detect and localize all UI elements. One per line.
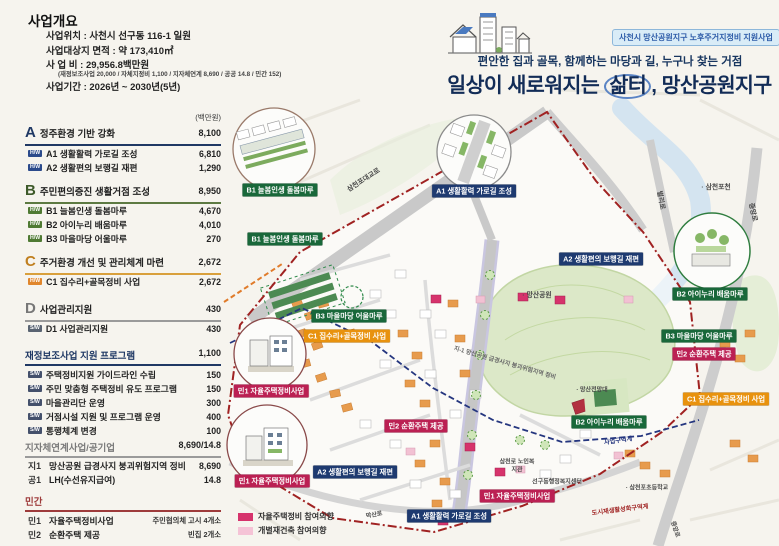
callout-label-b1: B1 늘봄인생 돌봄마루: [242, 184, 317, 197]
row-label: 순환주택 제공: [49, 528, 184, 541]
callout-label-a1: A1 생활활력 가로길 조성: [432, 185, 516, 198]
map-label-c1-east: C1 집수리+골목정비 사업: [683, 393, 769, 406]
row-label: 통행체계 변경: [46, 424, 203, 437]
sw-badge: S/W: [28, 371, 42, 378]
row-value: 14.8: [204, 475, 221, 485]
sw-badge: S/W: [28, 427, 42, 434]
overview-period: 사업기간 : 2026년 ~ 2030년(5년): [46, 79, 180, 93]
title-pre: 일상이 새로워지는: [447, 74, 604, 97]
section-title: 사업관리지원: [40, 305, 92, 316]
program-row-1: S/W주택정비지원 가이드라인 수립150: [28, 368, 221, 381]
linked-row-2: 공1LH(수선유지급여)14.8: [28, 473, 221, 486]
sw-badge: S/W: [28, 385, 42, 392]
row-value: 4,670: [199, 206, 221, 216]
title-circled-word: 삶터: [604, 74, 651, 99]
row-code: 민2: [28, 528, 45, 541]
row-label: 거점시설 지원 및 프로그램 운영: [46, 410, 203, 423]
legend-item-jayul: 자율주택정비 참여의향: [238, 511, 334, 522]
map-label-a2: A2 생활편의 보행길 재편: [559, 253, 643, 266]
hw-badge: H/W: [28, 235, 42, 242]
place-label-elementary-school: · 삼천포초등학교: [626, 483, 668, 492]
overview-area: 사업대상지 면적 : 약 173,410㎡: [46, 43, 173, 57]
map-label-c1: C1 집수리+골목정비 사업: [304, 330, 390, 343]
hw-badge: H/W: [28, 164, 42, 171]
budget-row-a1: H/WA1 생활활력 가로길 조성6,810: [28, 147, 221, 160]
section-title: 주민편의증진 생활거점 조성: [40, 187, 150, 198]
budget-row-d1: S/WD1 사업관리지원430: [28, 322, 221, 335]
map-label-b1: B1 늘봄인생 돌봄마루: [247, 233, 322, 246]
section-total: 2,672: [198, 257, 221, 267]
section-a-header: A정주환경 기반 강화8,100: [25, 124, 221, 146]
legend-label: 개별재건축 참여의향: [258, 525, 326, 536]
budget-row-b2: H/WB2 아이누리 배움마루4,010: [28, 218, 221, 231]
section-letter: C: [25, 253, 36, 270]
section-letter: A: [25, 124, 36, 141]
row-label: B1 늘봄인생 돌봄마루: [46, 204, 195, 217]
legend-swatch-crimson: [238, 513, 253, 521]
section-title: 지자체연계사업/공기업: [25, 443, 115, 454]
budget-row-b3: H/WB3 마을마당 어울마루270: [28, 232, 221, 245]
overview-title: 사업개요: [28, 10, 78, 30]
private-row-2: 민2순환주택 제공빈집 2개소: [28, 528, 221, 541]
section-total: 8,100: [198, 128, 221, 138]
program-row-2: S/W주민 맞춤형 주택정비 유도 프로그램150: [28, 382, 221, 395]
row-label: A2 생활편의 보행길 재편: [46, 161, 195, 174]
program-row-4: S/W거점시설 지원 및 프로그램 운영400: [28, 410, 221, 423]
section-d-header: D사업관리지원430: [25, 300, 221, 322]
section-title: 주거환경 개선 및 관리체계 마련: [40, 258, 164, 269]
hw-badge: H/W: [28, 278, 42, 285]
hw-badge: H/W: [28, 207, 42, 214]
map-label-b2-site: B2 아이누리 배움마루: [571, 416, 646, 429]
legend-swatch-pink: [238, 527, 253, 535]
row-label: 주민 맞춤형 주택정비 유도 프로그램: [46, 382, 203, 395]
row-value: 400: [206, 412, 221, 422]
row-value: 150: [206, 370, 221, 380]
place-label-park: · 망산공원: [522, 289, 551, 299]
row-label: B2 아이누리 배움마루: [46, 218, 195, 231]
row-value: 6,810: [199, 149, 221, 159]
program-row-3: S/W마을관리단 운영300: [28, 396, 221, 409]
map-label-min2: 민2 순환주택 제공: [384, 420, 447, 433]
program-row-5: S/W통행체계 변경100: [28, 424, 221, 437]
row-label: A1 생활활력 가로길 조성: [46, 147, 195, 160]
section-letter: D: [25, 300, 36, 317]
row-label: 주택정비지원 가이드라인 수립: [46, 368, 203, 381]
legend-item-gaebyeol: 개별재건축 참여의향: [238, 525, 326, 536]
row-value: 1,290: [199, 163, 221, 173]
row-value: 4,010: [199, 220, 221, 230]
budget-row-c1: H/WC1 집수리+골목정비 사업2,672: [28, 275, 221, 288]
program-badge: 사천시 망산공원지구 노후주거지정비 지원사업: [612, 29, 779, 46]
map-label-min1: 민1 자율주택정비사업: [480, 490, 555, 503]
section-total: 8,950: [198, 186, 221, 196]
linked-row-1: 지1망산공원 급경사지 붕괴위험지역 정비8,690: [28, 459, 221, 472]
row-value: 430: [206, 324, 221, 334]
section-title: 재정보조사업 지원 프로그램: [25, 351, 135, 362]
place-label-observatory: · 망산전망대: [576, 385, 607, 394]
map-label-b3: B3 마을마당 어울마루: [311, 310, 386, 323]
row-value: 8,690: [199, 461, 221, 471]
private-header: 민간: [25, 494, 221, 512]
section-c-header: C주거환경 개선 및 관리체계 마련2,672: [25, 253, 221, 275]
row-value: 빈집 2개소: [188, 530, 221, 540]
map-label-min2-east: 민2 순환주택 제공: [672, 348, 735, 361]
overview-cost-detail: (재정보조사업 20,000 / 자체지정비 1,100 / 지자체연계 8,6…: [58, 69, 281, 78]
row-label: D1 사업관리지원: [46, 322, 203, 335]
hw-badge: H/W: [28, 150, 42, 157]
place-label-stream: · 삼천포천: [701, 181, 730, 191]
row-value: 150: [206, 384, 221, 394]
section-total: 1,100: [198, 348, 221, 358]
row-code: 지1: [28, 459, 45, 472]
legend-label: 자율주택정비 참여의향: [258, 511, 334, 522]
section-b-header: B주민편의증진 생활거점 조성8,950: [25, 182, 221, 204]
sw-badge: S/W: [28, 399, 42, 406]
overview-location: 사업위치 : 사천시 선구동 116-1 일원: [46, 28, 191, 42]
callout-label-b2: B2 아이누리 배움마루: [672, 288, 747, 301]
page-title: 일상이 새로워지는 삶터, 망산공원지구: [440, 68, 779, 99]
row-value: 100: [206, 426, 221, 436]
map-label-a1-south: A1 생활활력 가로길 조성: [407, 510, 491, 523]
row-value: 2,672: [199, 277, 221, 287]
section-title: 정주환경 기반 강화: [40, 129, 115, 140]
section-title: 민간: [25, 497, 42, 508]
row-value: 주민협의체 고시 4개소: [152, 516, 221, 526]
hw-badge: H/W: [28, 221, 42, 228]
place-label-community-center: 선구동행정복지센터: [532, 477, 582, 486]
budget-row-a2: H/WA2 생활편의 보행길 재편1,290: [28, 161, 221, 174]
row-label: C1 집수리+골목정비 사업: [46, 275, 195, 288]
section-letter: B: [25, 182, 36, 199]
sw-badge: S/W: [28, 325, 42, 332]
section-total: 430: [206, 304, 221, 314]
place-label-welfare-center: 삼천로 노인복지관: [499, 460, 535, 475]
row-label: LH(수선유지급여): [49, 473, 200, 486]
row-code: 민1: [28, 514, 45, 527]
program-header: 재정보조사업 지원 프로그램1,100: [25, 348, 221, 366]
row-label: 자율주택정비사업: [49, 514, 148, 527]
header-subtitle: 편안한 집과 골목, 함께하는 마당과 길, 누구나 찾는 거점: [445, 53, 775, 69]
row-label: 망산공원 급경사지 붕괴위험지역 정비: [49, 459, 195, 472]
private-row-1: 민1자율주택정비사업주민협의체 고시 4개소: [28, 514, 221, 527]
row-label: 마을관리단 운영: [46, 396, 203, 409]
map-label-a2-south: A2 생활편의 보행길 재편: [313, 466, 397, 479]
row-label: B3 마을마당 어울마루: [46, 232, 202, 245]
row-value: 270: [206, 234, 221, 244]
callout-label-min1-bottom: 민1 자율주택정비사업: [235, 475, 310, 488]
callout-label-min1-top: 민1 자율주택정비사업: [234, 385, 309, 398]
map-label-b3-east: B3 마을마당 어울마루: [661, 330, 736, 343]
row-value: 300: [206, 398, 221, 408]
budget-row-b1: H/WB1 늘봄인생 돌봄마루4,670: [28, 204, 221, 217]
title-post: , 망산공원지구: [651, 74, 772, 97]
section-total: 8,690/14.8: [178, 440, 221, 450]
linked-header: 지자체연계사업/공기업8,690/14.8: [25, 440, 221, 458]
row-code: 공1: [28, 473, 45, 486]
sw-badge: S/W: [28, 413, 42, 420]
unit-label: (백만원): [150, 112, 221, 123]
